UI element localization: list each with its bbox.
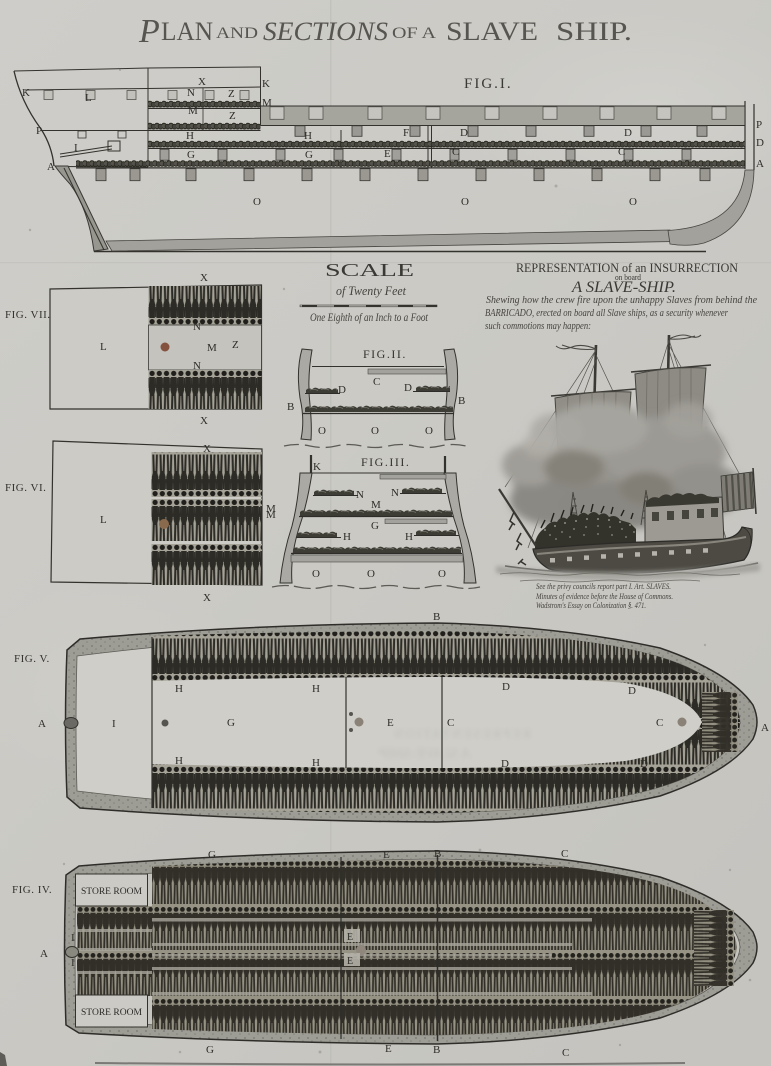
svg-text:of Twenty Feet: of Twenty Feet — [336, 283, 406, 298]
svg-text:O: O — [367, 568, 375, 580]
svg-text:E: E — [347, 932, 353, 943]
svg-text:Z: Z — [232, 339, 239, 351]
svg-text:O: O — [629, 196, 637, 208]
svg-text:N: N — [193, 360, 201, 372]
svg-text:N: N — [193, 321, 201, 333]
svg-text:E: E — [387, 717, 394, 729]
svg-text:I: I — [71, 957, 75, 969]
svg-text:K: K — [22, 87, 30, 99]
svg-text:H: H — [304, 130, 312, 142]
svg-text:B: B — [433, 611, 440, 623]
svg-text:B: B — [458, 395, 465, 407]
svg-text:N: N — [391, 487, 399, 499]
svg-text:G: G — [227, 717, 235, 729]
svg-text:X: X — [203, 592, 211, 604]
svg-text:C: C — [618, 146, 625, 158]
svg-text:Z: Z — [228, 88, 235, 100]
svg-text:A: A — [761, 722, 769, 734]
svg-text:M: M — [371, 499, 381, 511]
svg-text:STORE ROOM: STORE ROOM — [81, 1007, 142, 1017]
svg-text:H: H — [405, 531, 413, 543]
svg-text:LAN: LAN — [161, 17, 213, 46]
svg-text:Shewing how the crew fire upon: Shewing how the crew fire upon the unhap… — [486, 294, 757, 306]
svg-text:X: X — [203, 443, 211, 455]
svg-text:O: O — [253, 196, 261, 208]
svg-text:B: B — [434, 848, 441, 860]
svg-text:H: H — [312, 683, 320, 695]
svg-text:G: G — [305, 149, 313, 161]
svg-text:C: C — [562, 1047, 569, 1059]
svg-text:FIG.II.: FIG.II. — [363, 347, 407, 361]
svg-text:G: G — [371, 520, 379, 532]
svg-text:SECTIONS: SECTIONS — [263, 17, 388, 46]
svg-text:E: E — [384, 148, 391, 160]
svg-text:H: H — [186, 130, 194, 142]
svg-text:SCALE: SCALE — [325, 260, 414, 280]
svg-text:O: O — [371, 425, 379, 437]
svg-text:FIG. VII.: FIG. VII. — [5, 309, 51, 321]
svg-text:G: G — [208, 849, 216, 861]
svg-text:M: M — [207, 342, 217, 354]
svg-text:M: M — [188, 105, 198, 117]
svg-text:Wadstrom's Essay on Colonizati: Wadstrom's Essay on Colonization §. 471. — [536, 600, 646, 610]
svg-text:O: O — [461, 196, 469, 208]
svg-text:O: O — [438, 568, 446, 580]
svg-text:FIG. V.: FIG. V. — [14, 653, 50, 665]
svg-text:E: E — [383, 849, 390, 861]
svg-text:O: O — [425, 425, 433, 437]
svg-text:One Eighth of an Inch to a Foo: One Eighth of an Inch to a Foot — [310, 310, 429, 324]
svg-text:N: N — [187, 87, 195, 99]
svg-text:A: A — [38, 718, 46, 730]
svg-text:N: N — [356, 489, 364, 501]
svg-text:A: A — [40, 948, 48, 960]
svg-text:P: P — [36, 125, 42, 137]
svg-text:B: B — [287, 401, 294, 413]
svg-text:L: L — [85, 92, 92, 104]
svg-text:such commotions may happen:: such commotions may happen: — [485, 320, 591, 332]
svg-text:D: D — [756, 137, 764, 149]
svg-text:E: E — [347, 956, 353, 967]
svg-text:I: I — [112, 718, 116, 730]
svg-text:D: D — [501, 758, 509, 770]
svg-text:K: K — [313, 461, 321, 473]
svg-text:D: D — [624, 127, 632, 139]
svg-text:See the privy councils report: See the privy councils report part I. Ar… — [536, 581, 671, 591]
svg-text:M: M — [266, 503, 276, 515]
svg-text:D: D — [338, 384, 346, 396]
svg-text:A SLAVE-SHIP: A SLAVE-SHIP — [378, 746, 472, 762]
svg-text:M: M — [262, 97, 272, 109]
svg-text:B: B — [433, 1044, 440, 1056]
svg-text:AND: AND — [216, 25, 258, 42]
svg-text:FIG.I.: FIG.I. — [464, 76, 513, 92]
svg-text:O: O — [318, 425, 326, 437]
svg-text:G: G — [206, 1044, 214, 1056]
svg-text:P: P — [756, 119, 762, 131]
svg-text:X: X — [200, 415, 208, 427]
svg-text:X: X — [200, 272, 208, 284]
svg-text:BARRICADO, erected on board al: BARRICADO, erected on board all Slave sh… — [485, 307, 729, 319]
svg-text:FIG. IV.: FIG. IV. — [12, 884, 52, 896]
svg-text:C: C — [373, 376, 380, 388]
svg-text:A: A — [756, 158, 764, 170]
svg-text:SHIP.: SHIP. — [556, 17, 632, 46]
svg-text:A: A — [47, 161, 55, 173]
svg-text:H: H — [312, 757, 320, 769]
svg-text:SLAVE: SLAVE — [446, 17, 538, 46]
svg-text:E: E — [385, 1043, 392, 1055]
svg-text:D: D — [404, 382, 412, 394]
svg-text:K: K — [262, 78, 270, 90]
svg-text:G: G — [187, 149, 195, 161]
svg-text:H: H — [175, 755, 183, 767]
svg-text:I: I — [71, 932, 75, 944]
svg-text:O: O — [312, 568, 320, 580]
svg-text:H: H — [343, 531, 351, 543]
svg-text:P: P — [138, 13, 160, 50]
svg-text:L: L — [100, 514, 107, 526]
svg-text:OF A: OF A — [392, 25, 437, 42]
svg-text:FIG.III.: FIG.III. — [361, 455, 410, 469]
svg-text:D: D — [460, 127, 468, 139]
svg-text:D: D — [628, 685, 636, 697]
svg-text:STORE ROOM: STORE ROOM — [81, 886, 142, 896]
svg-text:I: I — [74, 142, 78, 154]
svg-text:C: C — [447, 717, 454, 729]
svg-text:X: X — [198, 76, 206, 88]
svg-text:C: C — [656, 717, 663, 729]
svg-text:C: C — [561, 848, 568, 860]
svg-text:C: C — [452, 146, 459, 158]
svg-text:Z: Z — [229, 110, 236, 122]
svg-text:F: F — [403, 127, 409, 139]
svg-text:REPRESENTATION: REPRESENTATION — [392, 726, 531, 741]
svg-text:D: D — [502, 681, 510, 693]
svg-text:FIG. VI.: FIG. VI. — [5, 482, 46, 494]
svg-text:H: H — [175, 683, 183, 695]
svg-text:L: L — [100, 341, 107, 353]
svg-text:D: D — [640, 758, 648, 770]
